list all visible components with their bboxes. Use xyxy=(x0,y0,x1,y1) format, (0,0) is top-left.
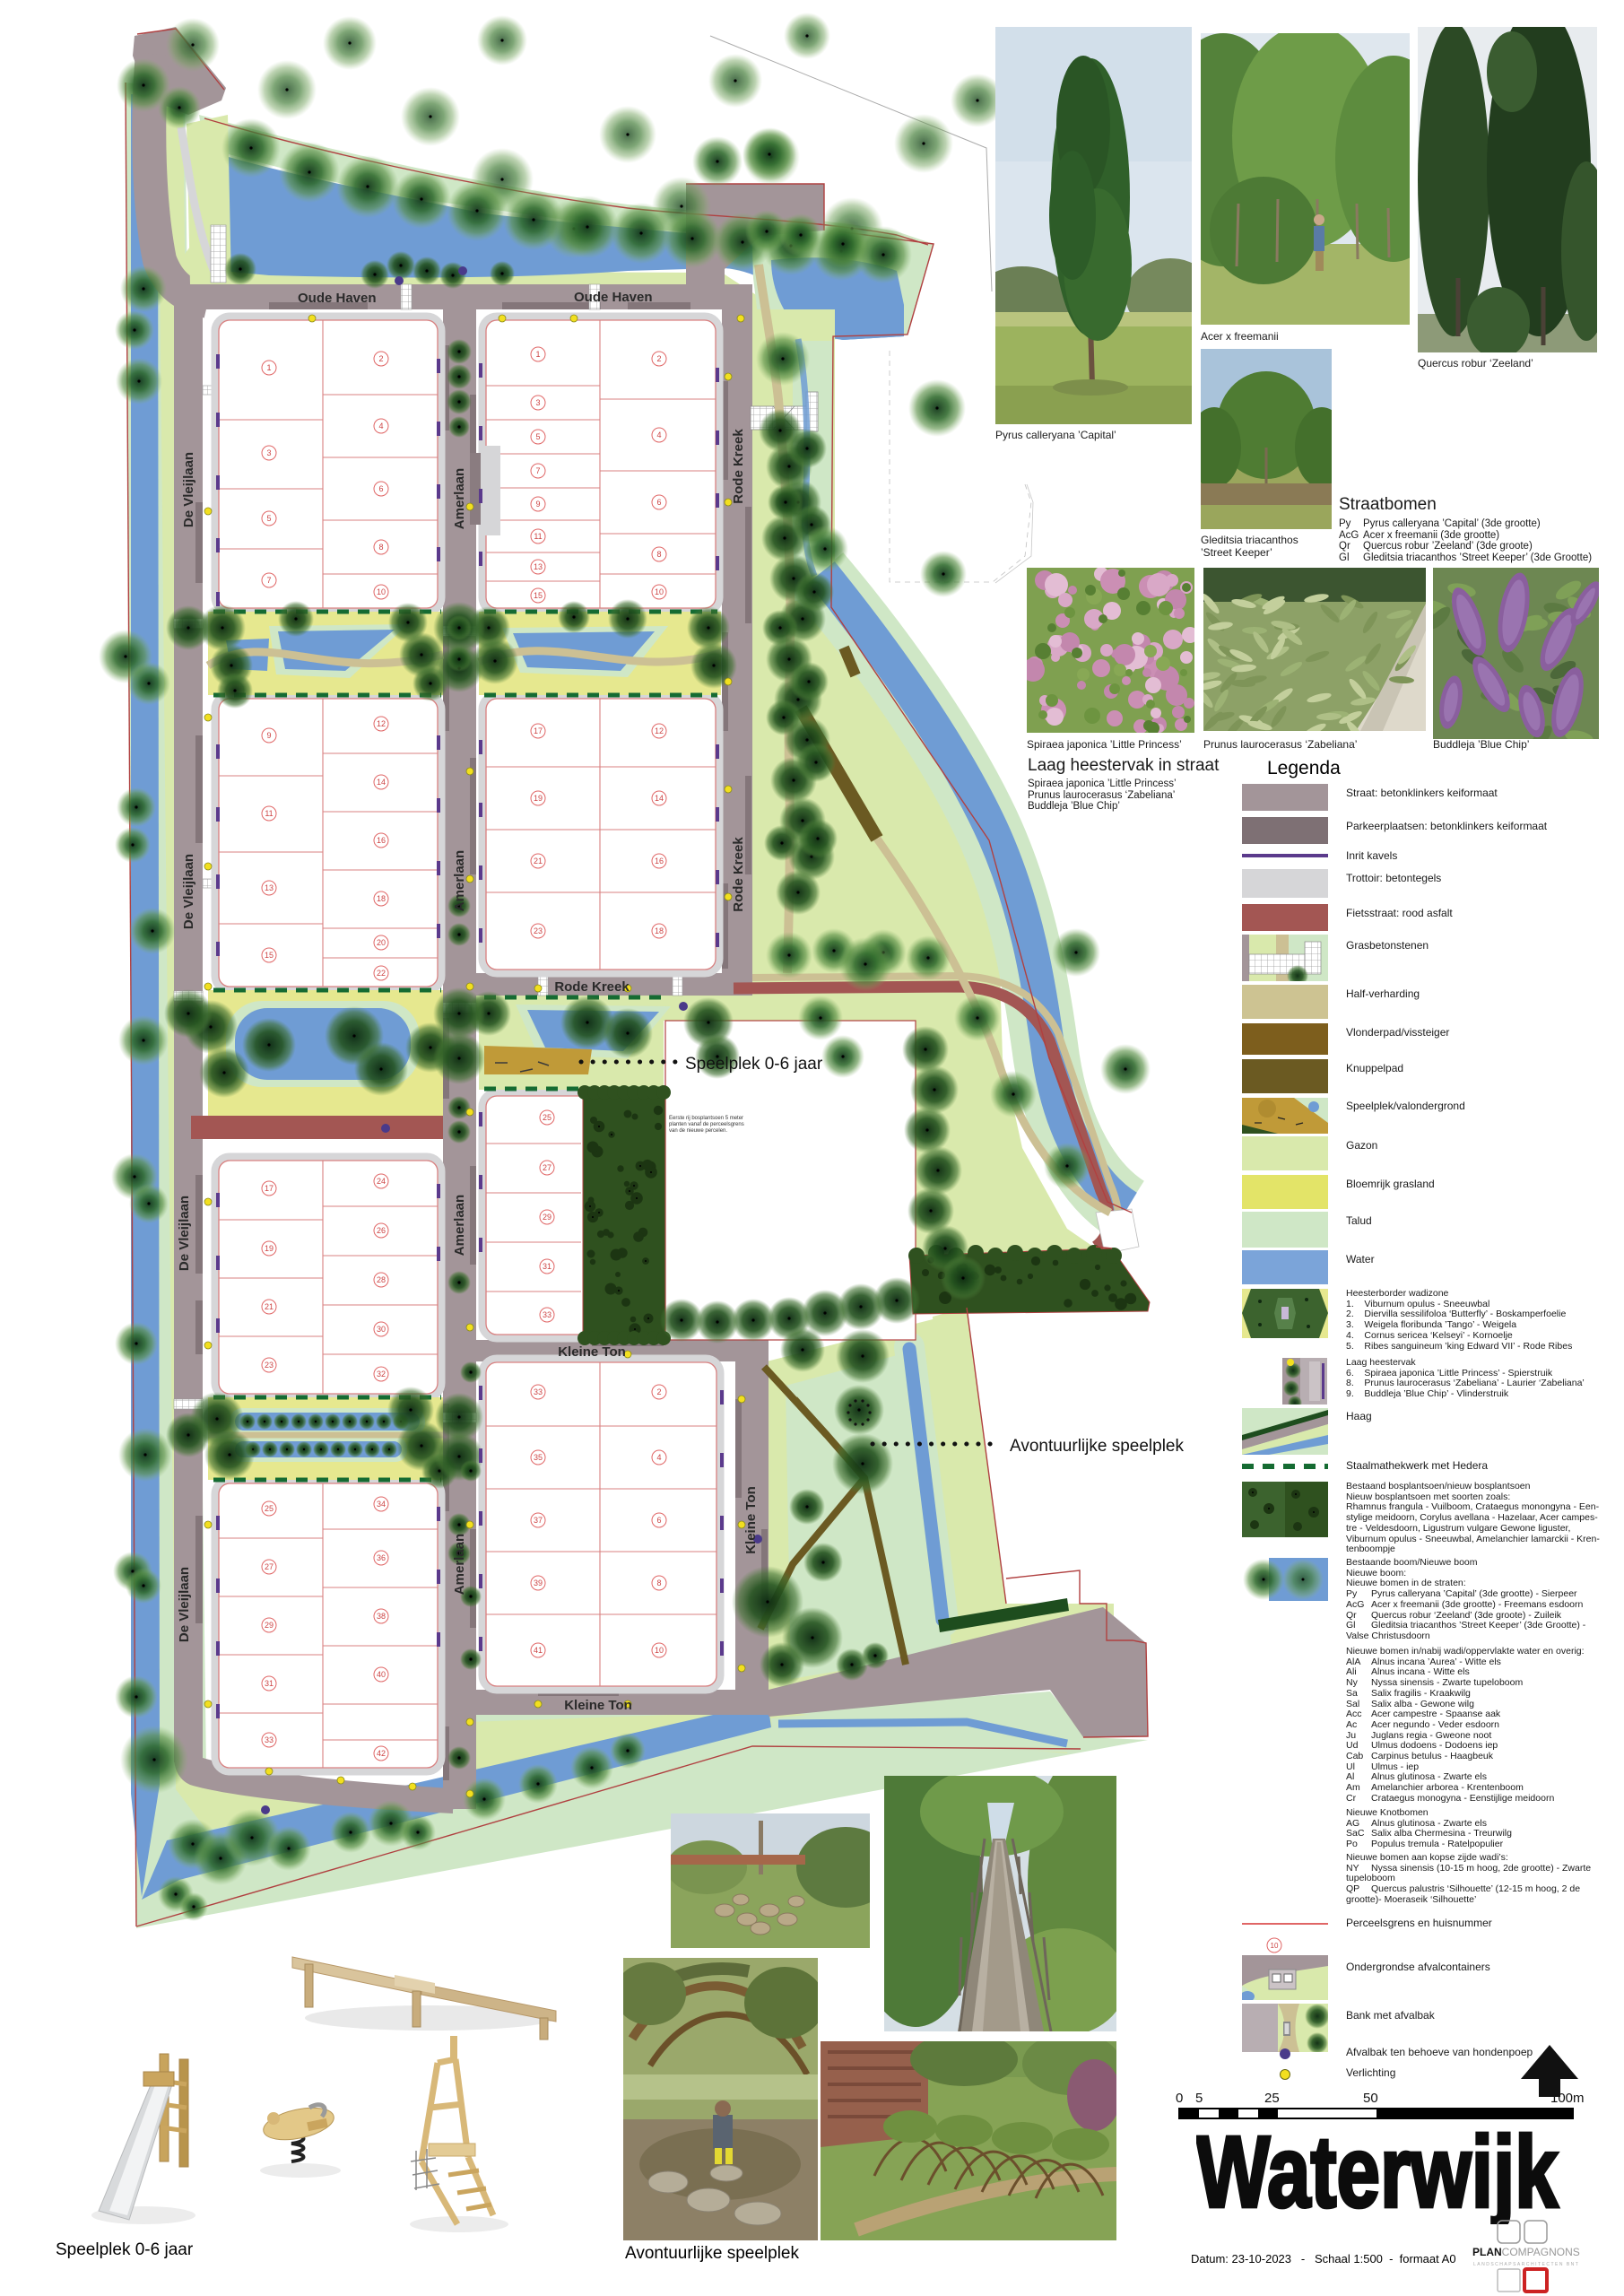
svg-text:10: 10 xyxy=(655,1646,664,1655)
svg-text:9: 9 xyxy=(535,500,540,509)
svg-text:Amerlaan: Amerlaan xyxy=(452,1534,467,1595)
svg-text:18: 18 xyxy=(655,926,664,935)
svg-text:11: 11 xyxy=(265,809,273,818)
svg-text:Rode Kreek: Rode Kreek xyxy=(731,837,746,912)
svg-text:17: 17 xyxy=(265,1184,274,1193)
svg-text:Rode Kreek: Rode Kreek xyxy=(554,979,630,995)
svg-text:28: 28 xyxy=(377,1275,386,1284)
svg-text:4: 4 xyxy=(378,422,383,430)
svg-text:10: 10 xyxy=(1271,1942,1279,1950)
svg-text:Kleine Ton: Kleine Ton xyxy=(564,1698,632,1713)
svg-text:50: 50 xyxy=(1363,2092,1378,2106)
svg-text:33: 33 xyxy=(543,1310,551,1319)
svg-text:31: 31 xyxy=(543,1262,551,1271)
svg-text:8: 8 xyxy=(656,1578,661,1587)
svg-text:4: 4 xyxy=(656,1453,661,1462)
svg-text:6: 6 xyxy=(656,498,661,507)
svg-text:2: 2 xyxy=(656,354,661,363)
svg-text:De Vleijlaan: De Vleijlaan xyxy=(181,452,196,527)
svg-text:2: 2 xyxy=(378,354,383,363)
svg-text:Speelplek 0-6 jaar: Speelplek 0-6 jaar xyxy=(685,1055,823,1074)
svg-text:De Vleijlaan: De Vleijlaan xyxy=(177,1196,192,1271)
svg-text:40: 40 xyxy=(377,1670,386,1679)
svg-text:Kleine Ton: Kleine Ton xyxy=(743,1486,759,1554)
svg-text:34: 34 xyxy=(377,1500,386,1509)
svg-text:van de nieuwe percelen.: van de nieuwe percelen. xyxy=(669,1128,727,1134)
svg-text:10: 10 xyxy=(377,587,386,596)
svg-text:33: 33 xyxy=(534,1387,543,1396)
svg-text:16: 16 xyxy=(377,836,386,845)
svg-text:5: 5 xyxy=(1195,2092,1203,2106)
svg-text:10: 10 xyxy=(655,587,664,596)
svg-text:26: 26 xyxy=(377,1226,386,1235)
svg-text:Eerste rij bosplantsoen 5 mete: Eerste rij bosplantsoen 5 meter xyxy=(669,1116,743,1121)
svg-text:25: 25 xyxy=(1264,2092,1280,2106)
svg-text:5: 5 xyxy=(266,514,271,523)
svg-text:De Vleijlaan: De Vleijlaan xyxy=(181,854,196,929)
svg-text:29: 29 xyxy=(543,1213,551,1222)
svg-text:8: 8 xyxy=(656,550,661,559)
svg-text:32: 32 xyxy=(377,1370,386,1378)
svg-text:21: 21 xyxy=(265,1302,274,1311)
svg-text:15: 15 xyxy=(534,591,543,600)
svg-text:16: 16 xyxy=(655,857,664,865)
svg-text:Avontuurlijke speelplek: Avontuurlijke speelplek xyxy=(1010,1437,1184,1456)
svg-text:31: 31 xyxy=(265,1679,274,1688)
svg-text:23: 23 xyxy=(534,926,543,935)
svg-text:6: 6 xyxy=(656,1516,661,1525)
svg-text:3: 3 xyxy=(535,398,540,407)
svg-text:3: 3 xyxy=(266,448,271,457)
svg-text:20: 20 xyxy=(377,938,386,947)
svg-text:33: 33 xyxy=(265,1735,274,1744)
svg-text:14: 14 xyxy=(377,778,386,787)
svg-text:Amerlaan: Amerlaan xyxy=(452,1195,467,1256)
svg-text:30: 30 xyxy=(377,1325,386,1334)
svg-text:39: 39 xyxy=(534,1578,543,1587)
svg-text:LANDSCHAPSARCHITECTEN BNT: LANDSCHAPSARCHITECTEN BNT xyxy=(1473,2262,1579,2267)
svg-text:13: 13 xyxy=(265,883,274,892)
svg-text:De Vleijlaan: De Vleijlaan xyxy=(177,1567,192,1642)
svg-text:24: 24 xyxy=(377,1177,386,1186)
svg-text:1: 1 xyxy=(535,350,540,359)
svg-text:23: 23 xyxy=(265,1361,274,1370)
svg-text:19: 19 xyxy=(534,794,543,803)
svg-text:25: 25 xyxy=(265,1504,274,1513)
svg-text:Amerlaan: Amerlaan xyxy=(452,850,467,911)
svg-text:38: 38 xyxy=(377,1612,386,1621)
svg-text:12: 12 xyxy=(655,726,664,735)
svg-text:5: 5 xyxy=(535,432,540,441)
svg-text:14: 14 xyxy=(655,794,664,803)
svg-text:6: 6 xyxy=(378,484,383,493)
svg-text:21: 21 xyxy=(534,857,543,865)
svg-text:13: 13 xyxy=(534,562,543,571)
svg-text:4: 4 xyxy=(656,430,661,439)
svg-text:41: 41 xyxy=(534,1646,543,1655)
svg-text:Waterwijk: Waterwijk xyxy=(1196,2126,1559,2224)
svg-text:PLANCOMPAGNONS: PLANCOMPAGNONS xyxy=(1472,2246,1580,2258)
svg-text:29: 29 xyxy=(265,1621,274,1630)
svg-text:25: 25 xyxy=(543,1113,551,1122)
svg-text:19: 19 xyxy=(265,1244,274,1253)
svg-text:7: 7 xyxy=(266,576,271,585)
svg-text:9: 9 xyxy=(266,731,271,740)
svg-text:42: 42 xyxy=(377,1749,386,1758)
svg-text:22: 22 xyxy=(377,969,386,978)
svg-text:12: 12 xyxy=(377,719,386,728)
svg-text:Kleine Ton: Kleine Ton xyxy=(558,1344,626,1360)
svg-text:2: 2 xyxy=(656,1387,661,1396)
svg-text:36: 36 xyxy=(377,1553,386,1562)
svg-text:Rode Kreek: Rode Kreek xyxy=(731,429,746,504)
svg-text:Amerlaan: Amerlaan xyxy=(452,468,467,529)
svg-text:7: 7 xyxy=(535,466,540,475)
svg-text:0: 0 xyxy=(1176,2092,1183,2106)
svg-text:37: 37 xyxy=(534,1516,543,1525)
svg-text:1: 1 xyxy=(266,363,271,372)
svg-text:8: 8 xyxy=(378,543,383,552)
svg-text:18: 18 xyxy=(377,894,386,903)
svg-text:11: 11 xyxy=(534,532,542,541)
svg-text:Oude Haven: Oude Haven xyxy=(574,290,653,305)
svg-text:27: 27 xyxy=(265,1562,274,1571)
svg-text:Oude Haven: Oude Haven xyxy=(298,291,377,306)
svg-text:15: 15 xyxy=(265,951,274,960)
svg-text:17: 17 xyxy=(534,726,543,735)
svg-text:35: 35 xyxy=(534,1453,543,1462)
svg-text:planten vanaf de perceelsgrens: planten vanaf de perceelsgrens xyxy=(669,1122,744,1127)
svg-text:27: 27 xyxy=(543,1163,551,1172)
